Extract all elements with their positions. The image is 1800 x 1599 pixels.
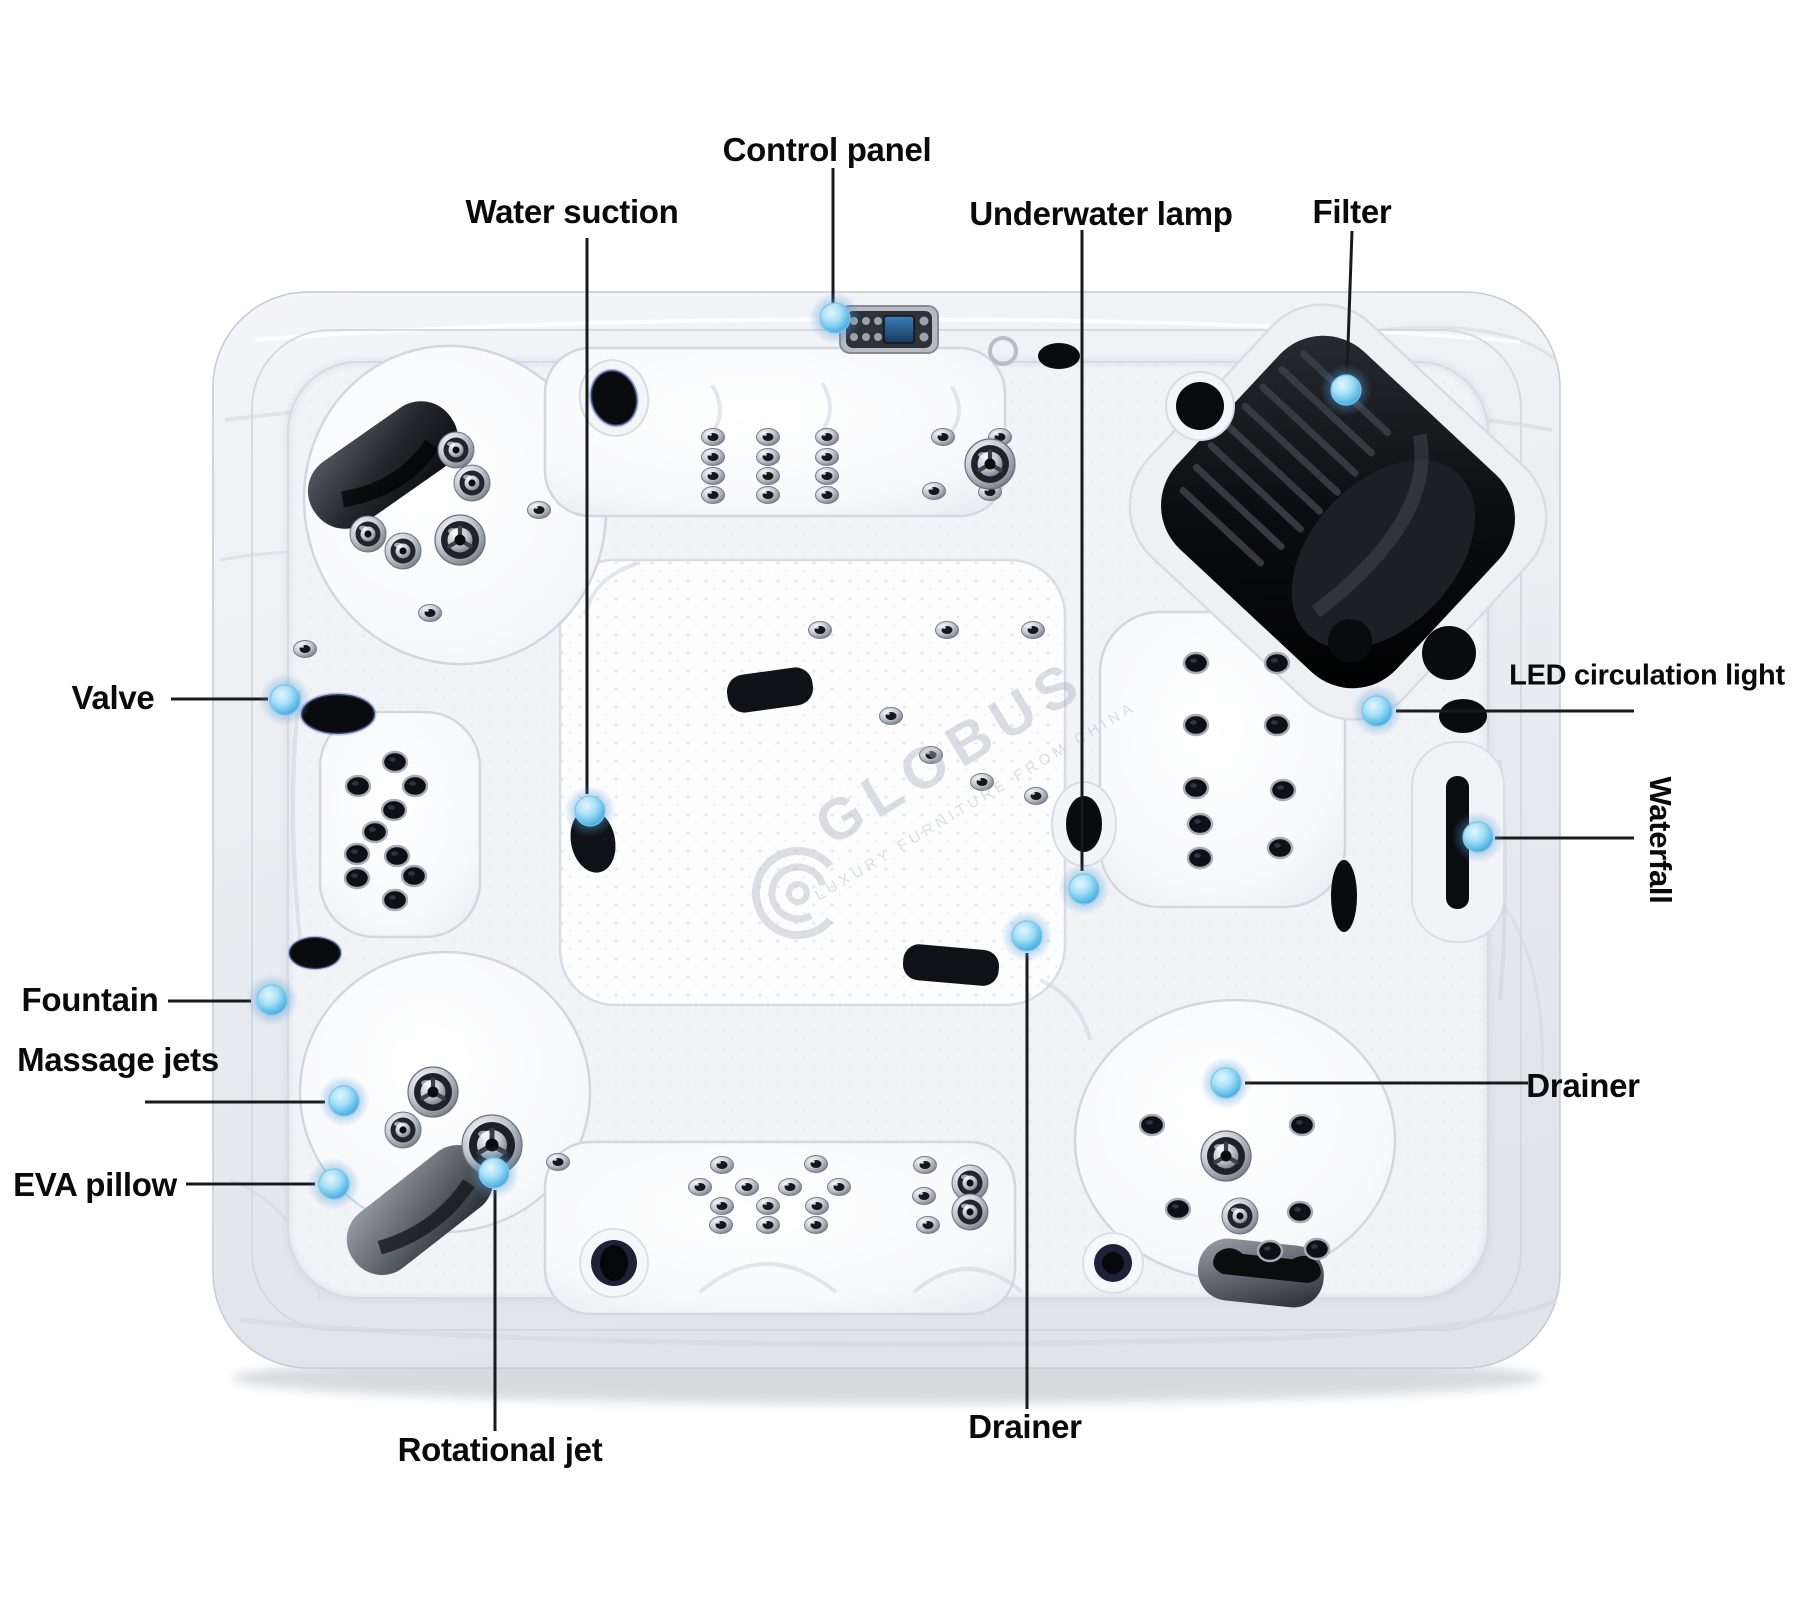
label-eva-pillow: EVA pillow bbox=[13, 1166, 177, 1204]
jet bbox=[419, 605, 442, 622]
label-massage-jets: Massage jets bbox=[17, 1041, 219, 1079]
marker-water-suction bbox=[564, 785, 616, 837]
control-panel-screen bbox=[884, 316, 914, 343]
hot-tub-diagram: GLOBUS LUXURY FURNITURE FROM CHINA bbox=[0, 0, 1800, 1599]
marker-valve bbox=[259, 674, 311, 726]
black-jet bbox=[382, 800, 406, 820]
black-jet bbox=[383, 890, 407, 910]
black-jet bbox=[403, 776, 427, 796]
label-led-circulation-light: LED circulation light bbox=[1509, 660, 1785, 693]
black-jet bbox=[402, 866, 426, 886]
marker-rotational-jet bbox=[468, 1147, 520, 1199]
jet bbox=[350, 516, 386, 552]
black-jet bbox=[346, 776, 370, 796]
underwater-lamp-port bbox=[1066, 796, 1102, 852]
jet bbox=[454, 465, 490, 501]
label-fountain: Fountain bbox=[22, 981, 159, 1019]
label-control-panel: Control panel bbox=[723, 131, 932, 169]
jet bbox=[528, 502, 551, 519]
marker-waterfall bbox=[1452, 811, 1504, 863]
label-drainer-right: Drainer bbox=[1526, 1067, 1639, 1105]
marker-filter bbox=[1320, 364, 1372, 416]
black-jet bbox=[383, 752, 407, 772]
marker-control-panel bbox=[809, 292, 861, 344]
jet bbox=[385, 533, 421, 569]
hot-tub-illustration: GLOBUS LUXURY FURNITURE FROM CHINA bbox=[0, 0, 1800, 1599]
label-underwater-lamp: Underwater lamp bbox=[969, 195, 1232, 233]
marker-underwater-lamp bbox=[1058, 863, 1110, 915]
black-jet bbox=[363, 822, 387, 842]
label-filter: Filter bbox=[1313, 193, 1392, 231]
marker-eva-pillow bbox=[308, 1158, 360, 1210]
label-drainer-bottom: Drainer bbox=[968, 1408, 1081, 1446]
jet bbox=[435, 515, 485, 565]
black-jet bbox=[385, 846, 409, 866]
marker-fountain bbox=[246, 974, 298, 1026]
label-rotational-jet: Rotational jet bbox=[398, 1431, 603, 1469]
marker-drainer-bottom bbox=[1001, 910, 1053, 962]
label-valve: Valve bbox=[72, 679, 155, 717]
black-jet bbox=[345, 844, 369, 864]
black-jet bbox=[345, 868, 369, 888]
marker-led-circulation-light bbox=[1351, 685, 1403, 737]
label-water-suction: Water suction bbox=[465, 193, 678, 231]
label-waterfall: Waterfall bbox=[1642, 776, 1678, 903]
marker-massage-jets bbox=[318, 1075, 370, 1127]
jet bbox=[294, 641, 317, 658]
marker-drainer-right bbox=[1200, 1057, 1252, 1109]
jet bbox=[438, 432, 474, 468]
